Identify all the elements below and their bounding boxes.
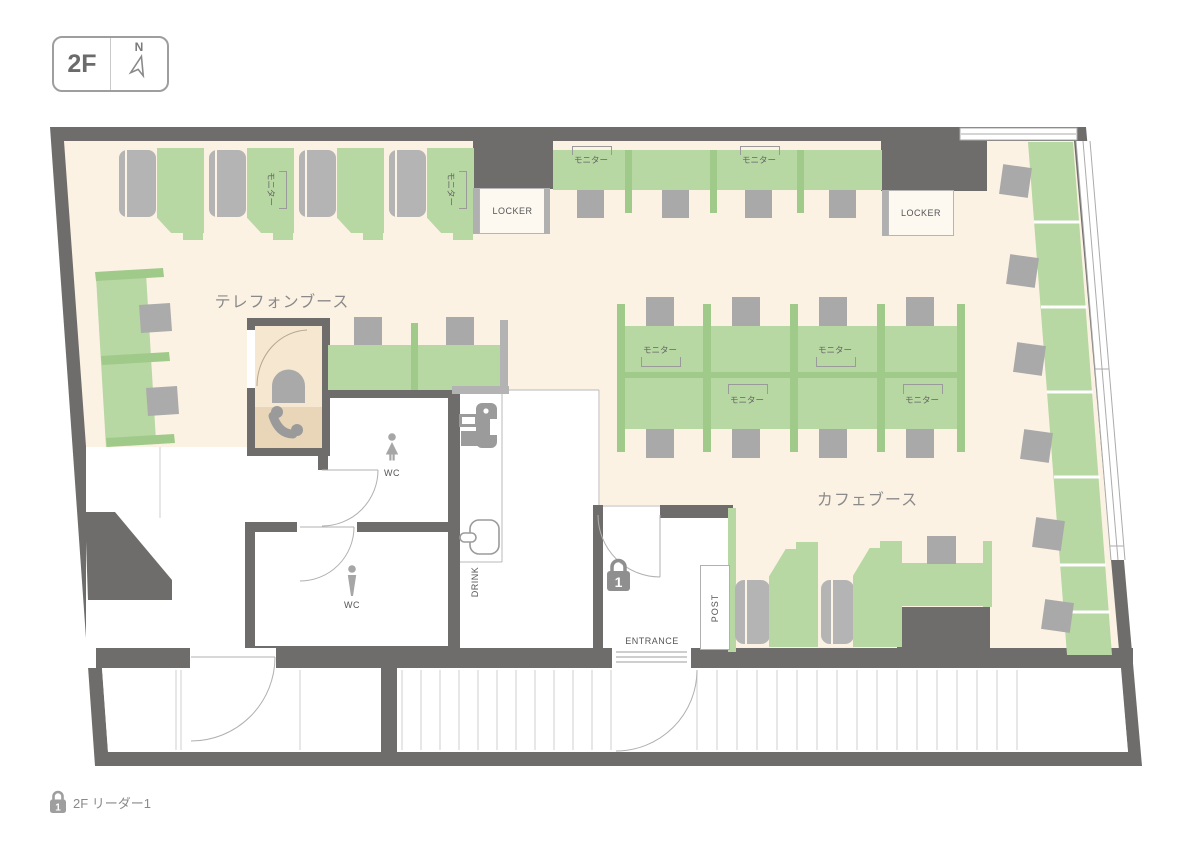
partition-wall [500,320,508,394]
cafe-block-wall [897,607,990,650]
entrance-lock-number: 1 [615,574,623,590]
seat-divider-line [305,150,307,217]
north-indicator: N [111,38,167,90]
desk-divider [710,150,717,213]
footer-reader-label: 2F リーダー1 [73,793,151,812]
entrance-door-opening [603,505,660,518]
footer-lock-icon: 1 [48,790,68,815]
chair [732,429,760,458]
phone-booth-chair [272,370,305,404]
chair [819,429,847,458]
chair [819,297,847,326]
locker-right: LOCKER [888,190,954,236]
chair [354,317,382,345]
monitor-label: モニター [717,395,777,406]
chair [646,429,674,458]
stairs-left-wall [381,648,397,758]
chair [927,536,956,564]
floor-legend-box: 2F N [52,36,169,92]
post-label: POST [708,579,722,637]
monitor-bracket [641,357,681,367]
chair [829,190,856,218]
cafe-divider [983,541,992,607]
monitor-label: モニター [444,166,457,212]
chair [1020,429,1053,463]
chair [906,297,934,326]
entrance-left-wall [593,505,603,648]
chair [1041,599,1074,633]
booth-desk-tab [273,233,293,240]
booth-desk-tab [453,233,473,240]
locker-niche-left [473,141,553,189]
monitor-bracket [816,357,856,367]
entrance-label: ENTRANCE [612,636,692,646]
monitor-label: モニター [553,155,629,166]
left-room-door-opening [190,648,276,668]
post-box: POST [700,565,730,650]
desk-divider [957,304,965,452]
cafe-counter [902,563,983,606]
footer-lock-number: 1 [55,803,61,814]
seat-divider-line [215,150,217,217]
monitor-bracket [728,384,768,394]
booth-seat [119,150,156,217]
chair [732,297,760,326]
locker-label: LOCKER [492,206,532,216]
desk-divider [790,304,798,452]
booth-seat [299,150,336,217]
cafe-desk-tab [796,542,818,550]
booth-seat [389,150,426,217]
chair [906,429,934,458]
desk-divider [411,323,418,390]
floor-number: 2F [54,38,111,90]
chair [646,297,674,326]
seat-divider-line [395,150,397,217]
north-label: N [135,41,144,53]
seat-divider-line [125,150,127,217]
booth-seat [209,150,246,217]
floor-plan-drawing: 1 [0,0,1200,850]
wc-label: WC [332,600,372,610]
booth-desk-tab [363,233,383,240]
wc1-floor [328,398,448,522]
monitor-bracket [459,171,467,209]
entrance-threshold [612,648,691,668]
monitor-bracket [572,146,612,155]
partition-wall [452,386,509,394]
cafe-desk-tab [880,541,902,549]
locker-side-wall [544,188,550,234]
phone-booth-door-opening [247,330,255,388]
chair [1006,254,1039,288]
chair [745,190,772,218]
booth-desk [337,148,384,233]
chair [577,190,604,218]
north-arrow-icon [126,53,152,81]
phone-booth-floor-bottom [255,407,322,448]
seat-divider-line [745,580,747,644]
wc1-door-opening [318,470,328,524]
floor-plan-page: 1 2F N モニター モニター モニター モニター LOCK [0,0,1200,850]
locker-left: LOCKER [479,188,546,234]
monitor-bracket [279,171,287,209]
monitor-label: モニター [892,395,952,406]
locker-niche-right [881,141,987,191]
booth-desk-tab [183,233,203,240]
desk-divider [703,304,711,452]
chair [1032,517,1065,551]
desk-divider [797,150,804,213]
cafe-booth-label: カフェブース [790,486,945,510]
seat-divider-line [831,580,833,644]
desk-divider [617,304,625,452]
cafe-sofa [821,580,854,644]
chair [1013,342,1046,376]
monitor-bracket [740,146,780,155]
monitor-label: モニター [630,345,690,356]
locker-label: LOCKER [901,208,941,218]
booth-desk [157,148,204,233]
chair [446,317,474,345]
drink-label: DRINK [469,561,482,603]
wc-label: WC [372,468,412,478]
chair [999,164,1032,198]
cafe-sofa [735,580,770,644]
monitor-label: モニター [264,166,277,212]
monitor-label: モニター [721,155,797,166]
monitor-bracket [903,384,943,394]
desk-divider [877,304,885,452]
monitor-label: モニター [805,345,865,356]
chair [662,190,689,218]
footer-legend: 1 2F リーダー1 [48,790,151,815]
telephone-booth-label: テレフォンブース [207,288,357,312]
